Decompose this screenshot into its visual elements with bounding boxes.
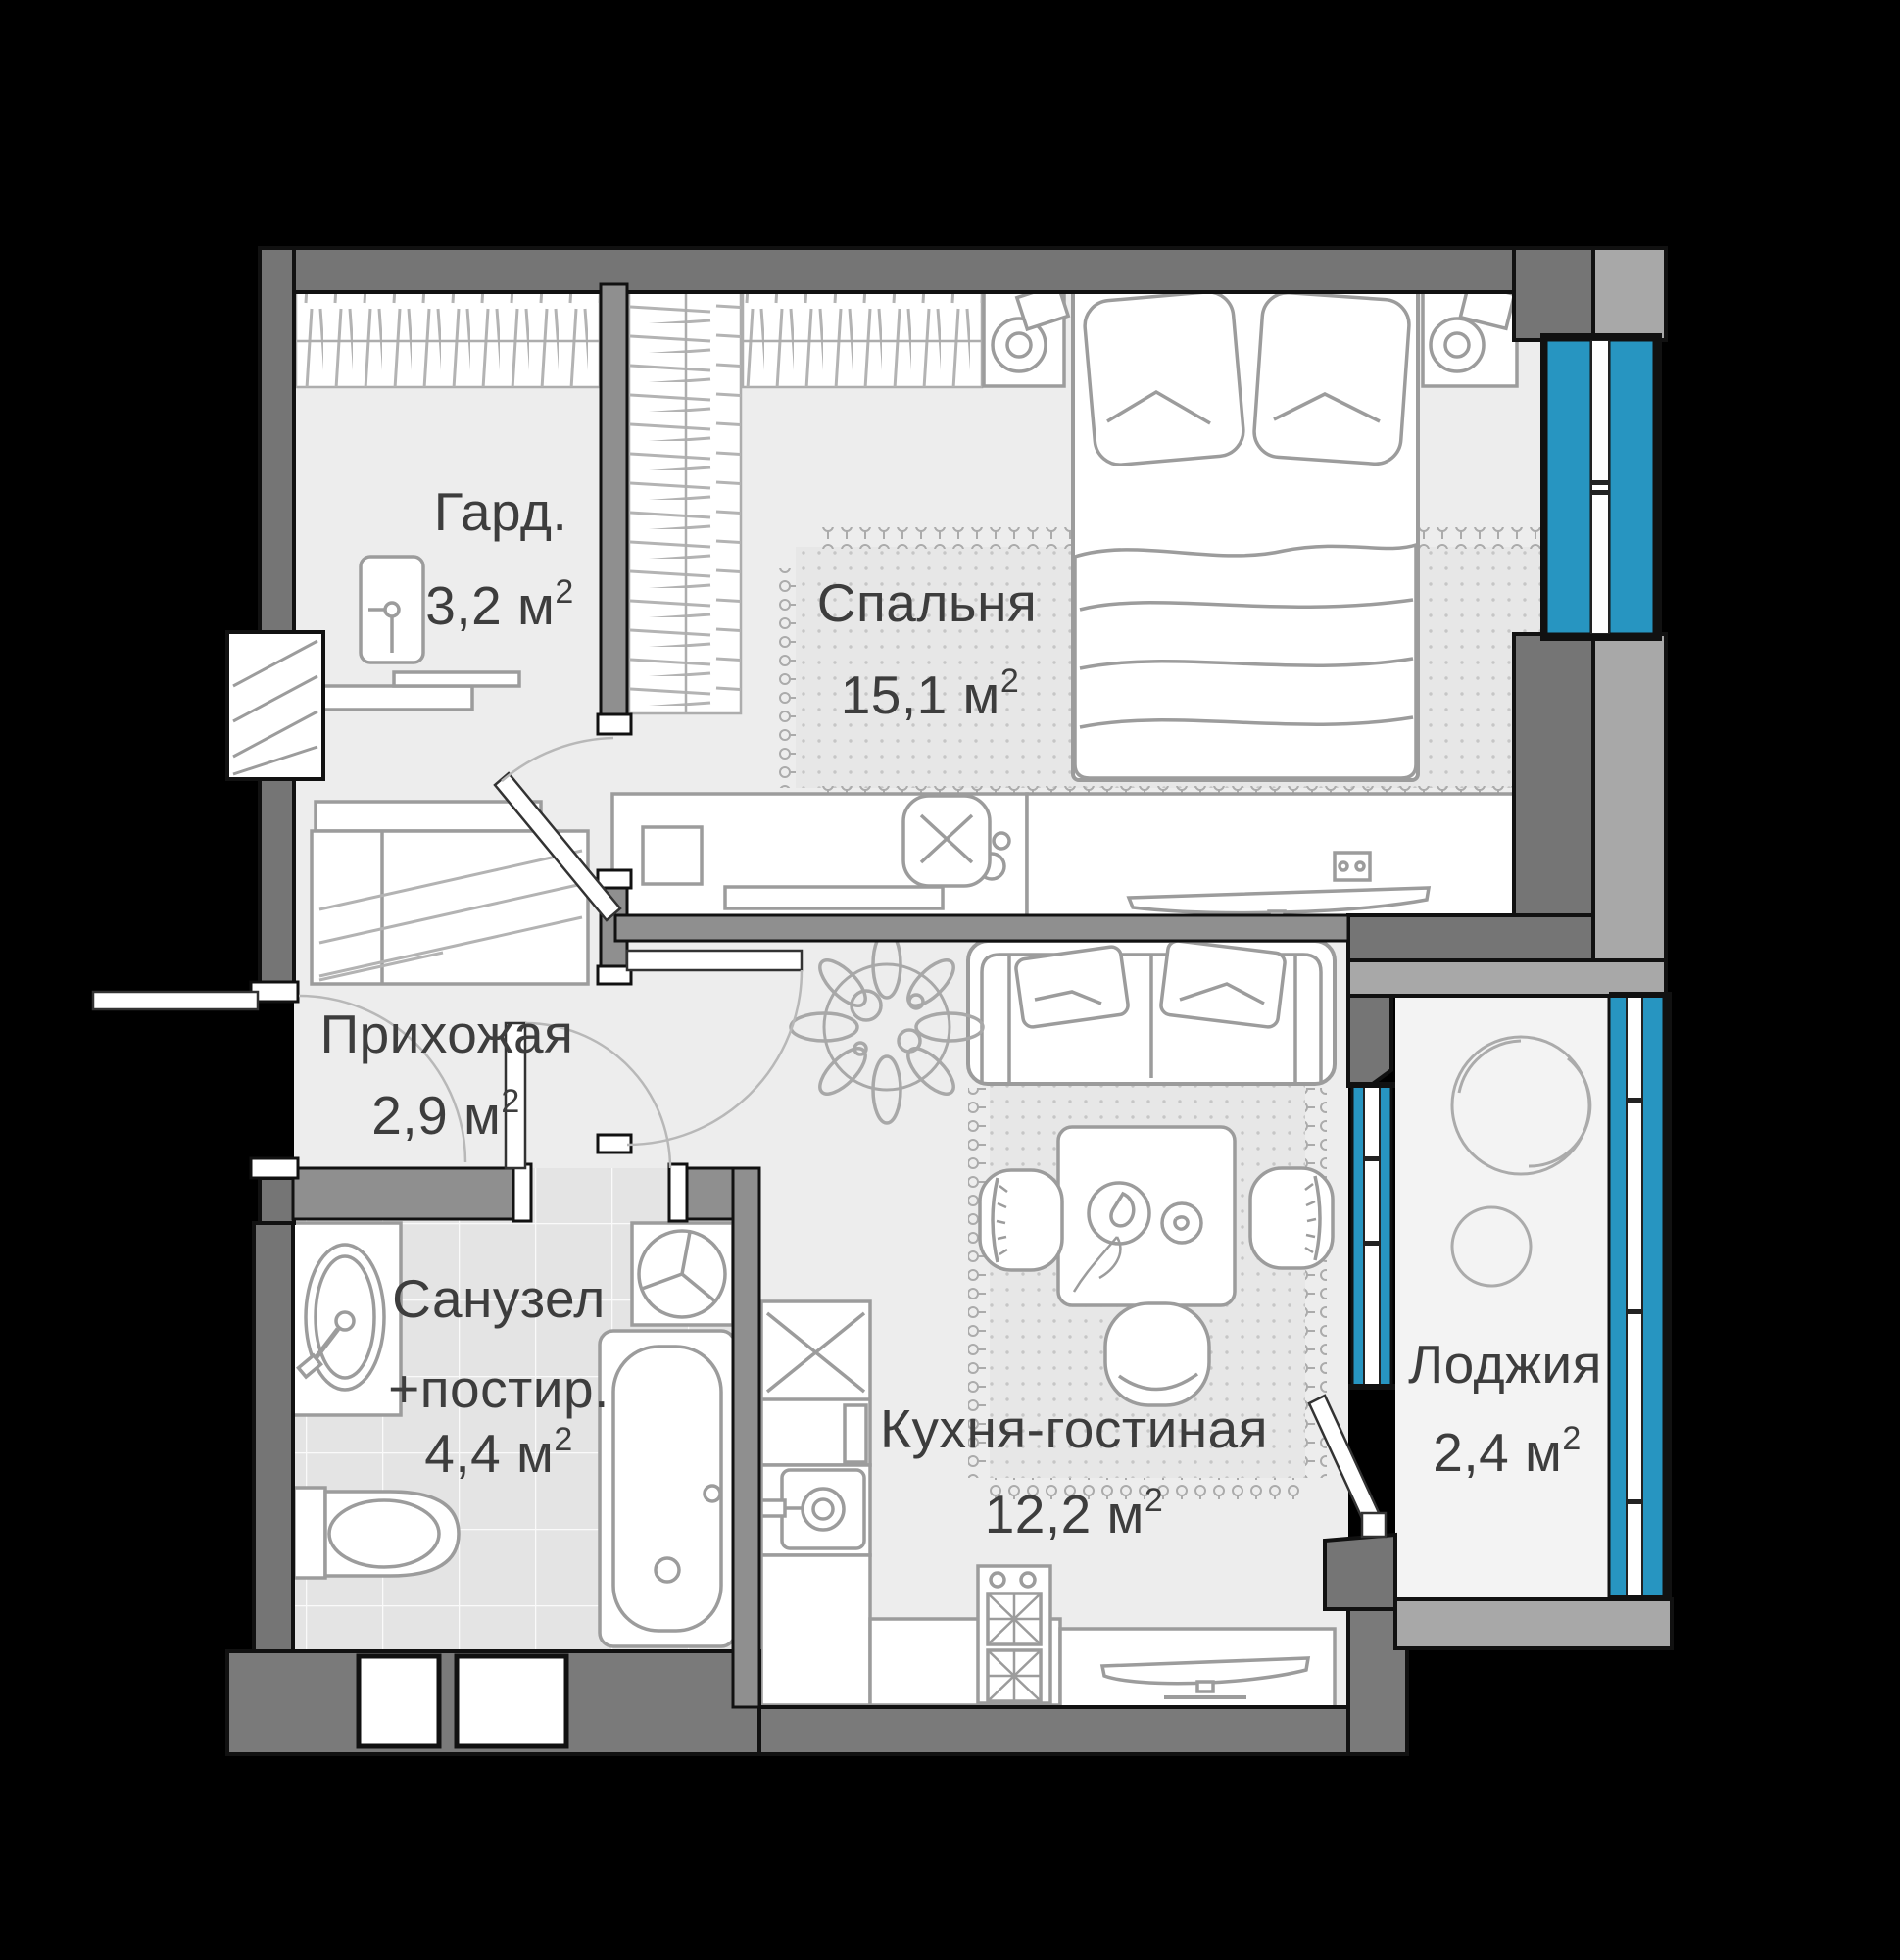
nightstand-left — [984, 282, 1068, 386]
floor-plan-screenshot: Гард. 3,2 м2 Спальня 15,1 м2 Прихожая 2,… — [0, 0, 1900, 1960]
wall-bottom-kitchen — [759, 1707, 1407, 1754]
garderob-closet-top — [296, 286, 600, 387]
label-loggia: Лоджия — [1408, 1334, 1602, 1395]
bed — [1073, 277, 1418, 780]
label-bedroom: Спальня — [817, 572, 1038, 633]
floor-plan-svg: Гард. 3,2 м2 Спальня 15,1 м2 Прихожая 2,… — [0, 0, 1900, 1960]
pillar-jamb-top — [598, 870, 631, 888]
wall-bedroom-bottom — [1348, 915, 1593, 960]
bedroom-closet-top — [743, 286, 982, 387]
label-hallway: Прихожая — [320, 1004, 574, 1064]
bathroom-sink — [293, 1223, 401, 1415]
area-garderob: 3,2 м2 — [425, 573, 573, 636]
wall-garderob — [601, 284, 627, 716]
label-garderob: Гард. — [434, 481, 567, 542]
washing-machine — [632, 1223, 733, 1325]
wall-left-lower — [254, 1223, 293, 1651]
facade-right-below-window — [1593, 634, 1666, 996]
bedroom-closet-column — [629, 286, 741, 713]
desk-chair — [903, 796, 990, 886]
label-kitchen: Кухня-гостиная — [880, 1398, 1268, 1459]
entrance-jamb-bottom — [251, 1158, 298, 1178]
dining-stool — [1105, 1303, 1209, 1405]
vent-shaft — [227, 632, 323, 779]
bathtub — [600, 1331, 735, 1646]
wall-bathroom-right — [733, 1168, 759, 1707]
area-bathroom: 4,4 м2 — [424, 1421, 572, 1484]
wall-left-mid — [260, 1178, 294, 1223]
shaft-box-2 — [457, 1656, 566, 1746]
area-loggia: 2,4 м2 — [1433, 1420, 1581, 1483]
wall-left-upper — [260, 248, 294, 984]
wall-loggia-door-block — [1325, 1535, 1395, 1609]
area-hallway: 2,9 м2 — [371, 1083, 519, 1146]
wall-partition-bedroom-living — [615, 915, 1348, 941]
tv-bench — [1060, 1629, 1335, 1707]
toilet — [294, 1488, 459, 1578]
facade-right-above-window — [1593, 248, 1666, 340]
area-kitchen: 12,2 м2 — [985, 1482, 1164, 1544]
wall-loggia-bottom — [1395, 1599, 1672, 1648]
water-heater — [361, 557, 423, 662]
dining-table — [1058, 1127, 1235, 1305]
kitchen-cabinet — [761, 1301, 870, 1465]
kitchen-counter — [761, 1555, 870, 1705]
bedroom-window — [1540, 333, 1662, 641]
room-loggia-floor — [1395, 996, 1609, 1599]
kitchen-door-jamb-bottom — [598, 1135, 631, 1152]
wall-top — [260, 248, 1514, 292]
wall-right-below-window — [1514, 634, 1593, 919]
bathroom-door-jamb-left — [513, 1164, 531, 1221]
kitchen-sink — [761, 1465, 870, 1555]
tv-console-bedroom — [1027, 794, 1534, 923]
loggia-glazing-left — [1348, 1082, 1395, 1390]
nightstand-right — [1423, 282, 1517, 386]
wall-loggia-pillar — [1348, 996, 1391, 1086]
label-bathroom: Санузел — [392, 1268, 606, 1329]
garderob-door-jamb — [598, 714, 631, 734]
bathroom-door-jamb-right — [669, 1164, 687, 1221]
wall-right-above-window — [1514, 248, 1593, 340]
bathroom-door-tiles — [529, 1168, 671, 1221]
facade-bedroom-bottom — [1348, 960, 1666, 996]
dining-chair-right — [1250, 1168, 1333, 1268]
loggia-glazing-right — [1609, 992, 1672, 1601]
carpet-fringe-left — [774, 568, 796, 788]
wall-bathroom-top-left — [293, 1168, 529, 1219]
shaft-box-1 — [359, 1656, 439, 1746]
dining-chair-left — [980, 1170, 1062, 1270]
area-bedroom: 15,1 м2 — [841, 662, 1020, 725]
stove — [978, 1566, 1050, 1703]
label-bathroom-2: +постир. — [388, 1358, 609, 1419]
sofa — [968, 940, 1335, 1084]
